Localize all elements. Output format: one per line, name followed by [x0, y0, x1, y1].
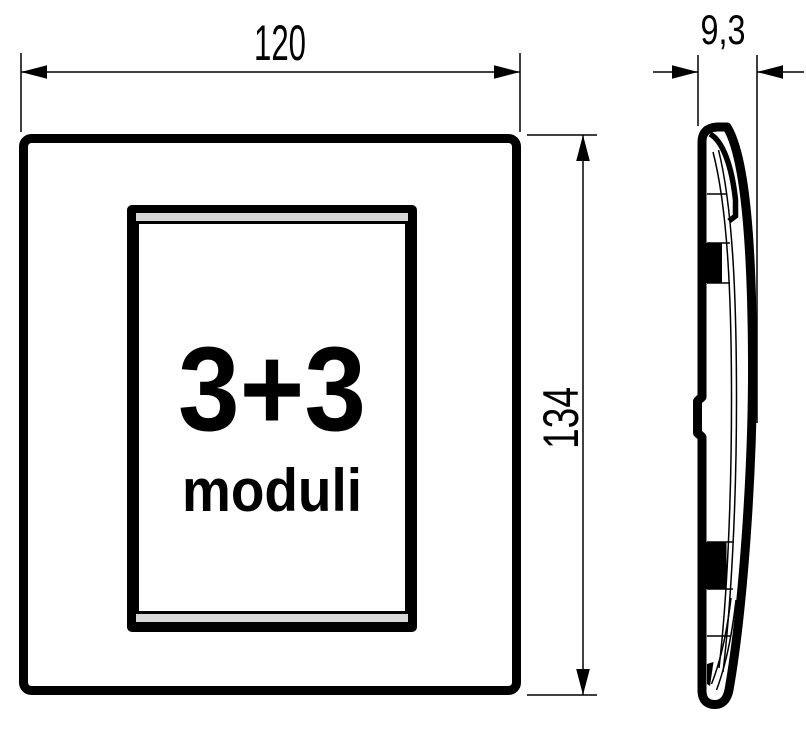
arrowhead-inward-right-icon: [757, 65, 783, 79]
side-clip-upper: [707, 243, 723, 283]
arrowhead-inward-left-icon: [672, 65, 698, 79]
side-view: [698, 127, 753, 705]
height-dimension-value: 134: [533, 387, 589, 449]
depth-dimension-value: 9,3: [701, 6, 746, 53]
moduli-label: moduli: [182, 457, 362, 524]
arrowhead-top-icon: [576, 135, 590, 161]
arrowhead-right-icon: [494, 65, 520, 79]
arrowhead-bottom-icon: [576, 669, 590, 695]
width-dimension: 120: [21, 15, 520, 132]
width-dimension-value: 120: [254, 15, 306, 71]
front-view: 3+3 moduli: [24, 139, 517, 691]
technical-drawing: 120 134 9,3: [0, 0, 806, 732]
height-dimension: 134: [527, 135, 597, 695]
arrowhead-left-icon: [21, 65, 47, 79]
side-clip-lower: [707, 542, 727, 589]
side-profile-outline: [698, 127, 753, 705]
module-count-label: 3+3: [178, 322, 366, 456]
